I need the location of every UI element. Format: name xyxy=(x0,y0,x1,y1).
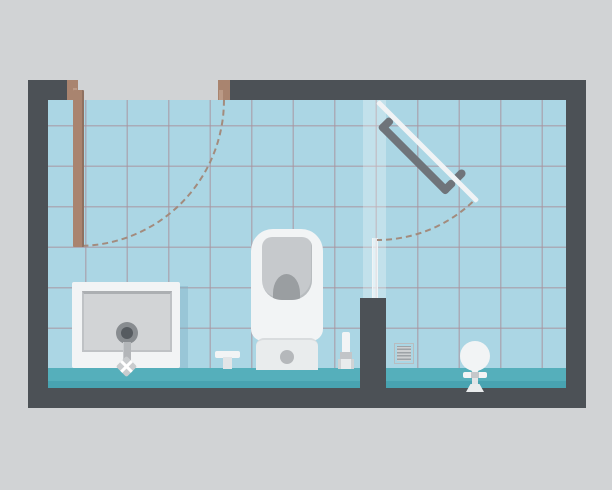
glass-panel-edge xyxy=(372,238,378,298)
partition-half-wall xyxy=(360,298,386,390)
wall-top-right xyxy=(230,80,566,100)
pedestal-fixture-stem xyxy=(472,378,478,385)
bathroom-floorplan-illustration xyxy=(0,0,612,490)
flush-button-icon xyxy=(280,350,294,364)
toilet-bowl-water xyxy=(273,274,300,300)
dashed-arc-circle xyxy=(377,200,478,241)
toilet-brush-handle xyxy=(342,332,350,353)
shower-tray xyxy=(72,282,180,368)
entry-door-leaf xyxy=(73,90,84,247)
toilet xyxy=(251,229,323,341)
wall-bottom xyxy=(28,388,586,408)
toilet-brush-cup xyxy=(338,359,354,369)
toilet-brush-band xyxy=(340,352,352,359)
wall-left xyxy=(28,80,48,408)
door-jamb-notch xyxy=(219,90,223,100)
shower-tray-shadow xyxy=(179,286,188,368)
vent-grille-icon xyxy=(394,343,414,364)
drain-icon xyxy=(116,322,138,344)
entry-door-swing-arc xyxy=(78,100,226,248)
toilet-bowl xyxy=(262,237,312,300)
wall-right xyxy=(566,80,586,408)
dashed-arc-circle xyxy=(78,100,225,247)
floor-tap-stem xyxy=(223,357,232,369)
toilet-base xyxy=(256,338,318,370)
drain-hole xyxy=(121,327,133,339)
shower-door-swing-arc xyxy=(377,200,478,242)
door-jamb-right xyxy=(218,80,230,100)
